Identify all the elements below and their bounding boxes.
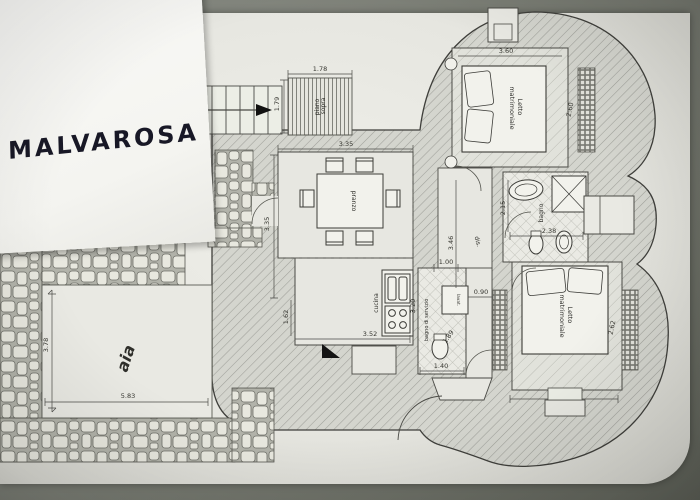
- pillow: [567, 268, 603, 295]
- courtyard-wall-connector: [232, 388, 274, 462]
- dim-dining-h: 3.35: [263, 217, 271, 231]
- dim-bath-h: 2.15: [499, 201, 507, 215]
- dim-hall-gap: 0.90: [474, 288, 488, 296]
- svg-text:piano sopra: piano sopra: [314, 97, 327, 116]
- dining-chair: [356, 231, 373, 245]
- dining-chair: [326, 158, 343, 172]
- pillow: [464, 71, 494, 108]
- dim-service-bath-h: 3.20: [409, 299, 417, 313]
- dining-table: [317, 174, 383, 228]
- dining-chair: [326, 231, 343, 245]
- dining-chair: [386, 190, 400, 207]
- note-title: MALVAROSA: [8, 118, 200, 165]
- dim-kitchen-h: 1.62: [282, 310, 290, 324]
- loft-label-line2: sopra: [320, 97, 327, 114]
- exterior-step-kitchen: [352, 346, 396, 374]
- bath-label: bagno: [538, 203, 545, 222]
- radiator-bedroom-bottom-left: [493, 290, 507, 370]
- washing-machine-label: lavat.: [455, 294, 461, 306]
- dim-kitchen-w: 3.52: [363, 330, 377, 338]
- washing-machine: [442, 286, 468, 314]
- radiator-bedroom-top: [578, 68, 595, 152]
- dining-chair: [356, 158, 373, 172]
- pillow: [464, 109, 493, 144]
- bedroom-bottom-label-line2: matrimoniale: [558, 294, 566, 337]
- kitchen-stove: [385, 306, 410, 333]
- dim-dining-w: 3.35: [339, 140, 353, 148]
- dim-loft-h: 1.79: [273, 97, 281, 111]
- radiator-bedroom-bottom-right: [622, 290, 638, 370]
- dim-hall-h: 3.46: [447, 236, 455, 250]
- dining-chair: [300, 190, 314, 207]
- dim-courtyard-h: 3.78: [42, 338, 50, 352]
- courtyard: aia 3.78 5.83: [42, 285, 212, 418]
- dining-table-label: pranzo: [350, 191, 357, 212]
- dim-service-bath-w: 1.40: [434, 362, 448, 370]
- loft-area: piano sopra: [288, 78, 352, 135]
- bedroom-top-label-line1: Letto: [516, 99, 524, 116]
- bedroom-bottom-label-line1: Letto: [566, 307, 574, 324]
- dim-loft-w: 1.78: [313, 65, 327, 73]
- dim-bath-w: 2.38: [542, 227, 556, 235]
- service-bath-label: bagno di servizio: [424, 299, 430, 342]
- wall-niche-right: [584, 196, 634, 234]
- chimney: [488, 8, 518, 42]
- handwritten-note-sheet: MALVAROSA: [0, 0, 215, 254]
- kitchen-label: cucina: [373, 293, 380, 313]
- dim-courtyard-w: 5.83: [121, 392, 135, 400]
- pillow: [526, 268, 566, 296]
- bedroom-top-label-line2: matrimoniale: [508, 86, 516, 129]
- bidet: [556, 231, 572, 253]
- dim-hall-w: 1.00: [439, 258, 453, 266]
- toilet: [529, 234, 543, 254]
- dim-bedroom-top-w: 3.60: [499, 47, 513, 55]
- window-sill-bottom: [545, 400, 585, 416]
- courtyard-wall-bottom: [0, 418, 235, 462]
